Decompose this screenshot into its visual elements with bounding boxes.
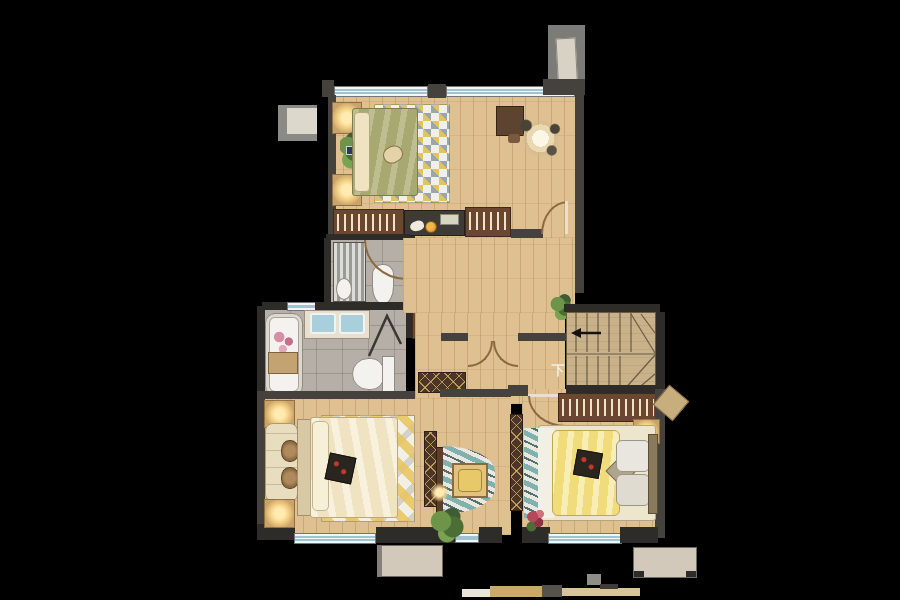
hall-door-wall-right: [518, 333, 566, 341]
br-bed-headboard: [648, 434, 658, 514]
pumpkin-orange: [425, 221, 437, 233]
top-bed-pillows: [354, 112, 370, 192]
sink-right: [339, 313, 365, 334]
stairs-down-label: [551, 362, 565, 377]
br-wall-top-left: [508, 385, 528, 396]
br-bed-tray: [573, 449, 603, 479]
next-plan-sliver-5: [600, 584, 618, 589]
bl-bed-tray: [324, 452, 356, 484]
left-bath-toilet-bowl: [352, 358, 384, 390]
ac-platform-corner-left: [634, 571, 644, 577]
br-wardrobe-hangers: [562, 399, 654, 416]
wall-right-spine: [575, 86, 584, 293]
pillar-left-cap: [287, 108, 317, 134]
next-plan-sliver-3: [542, 585, 562, 597]
stairs-wall-right: [656, 312, 665, 392]
flower-arrangement: [518, 116, 563, 159]
bl-chaise: [265, 423, 298, 502]
top-bedroom-window-left: [334, 86, 428, 97]
left-bath-wall-top-2: [315, 302, 407, 310]
br-bedroom-window: [548, 533, 622, 544]
top-bedroom-door-leaf: [565, 201, 568, 234]
left-bath-wall-top-1: [262, 302, 288, 310]
ledge-bottom-small: [587, 574, 601, 585]
desk-lamp-glow: [431, 483, 448, 502]
hall-door-wall-left: [441, 333, 468, 341]
bl-bedroom-wall-top-1: [257, 391, 415, 399]
br-window-pier-2: [620, 527, 658, 543]
br-wardrobe-wall: [566, 385, 658, 393]
wall-seg-below-door: [511, 229, 543, 238]
balcony-platform-bottom: [377, 545, 443, 577]
next-plan-sliver-1: [462, 589, 490, 597]
br-partition-left: [510, 414, 523, 511]
left-bath-toilet-tank: [382, 356, 395, 392]
bl-bedroom-wall-top-2: [440, 389, 511, 397]
br-flower-pot: [523, 507, 547, 535]
upper-bath-mirror: [336, 278, 352, 300]
desk-chair: [458, 469, 482, 492]
br-pillow-1: [616, 440, 650, 472]
stairs-wall-top: [564, 304, 660, 312]
sink-left: [310, 313, 336, 334]
upper-bath-wall-left: [324, 238, 331, 312]
staircase-treads: [567, 313, 657, 392]
console-mat: [440, 214, 459, 225]
next-plan-sliver-4: [562, 588, 640, 596]
staircase: [566, 312, 656, 391]
top-wardrobe-left-hangers: [337, 214, 400, 231]
ac-platform-corner-right: [686, 571, 696, 577]
bathtub-caddy: [268, 352, 298, 374]
shower-folding-door: [366, 310, 412, 360]
bl-nightstand-bottom: [264, 499, 295, 528]
wall-pier-top-mid: [428, 84, 446, 98]
left-bath-wall-left: [257, 306, 265, 400]
bl-bedroom-window: [294, 533, 376, 544]
top-wardrobe-right-hangers: [469, 212, 507, 230]
next-plan-sliver-2: [490, 586, 542, 597]
floorplan-canvas: [0, 0, 900, 600]
bl-bed-headboard: [297, 419, 311, 516]
bl-bedroom-plant: [427, 506, 467, 544]
br-pillow-2: [616, 474, 650, 506]
bl-window-pier-4: [479, 527, 502, 543]
